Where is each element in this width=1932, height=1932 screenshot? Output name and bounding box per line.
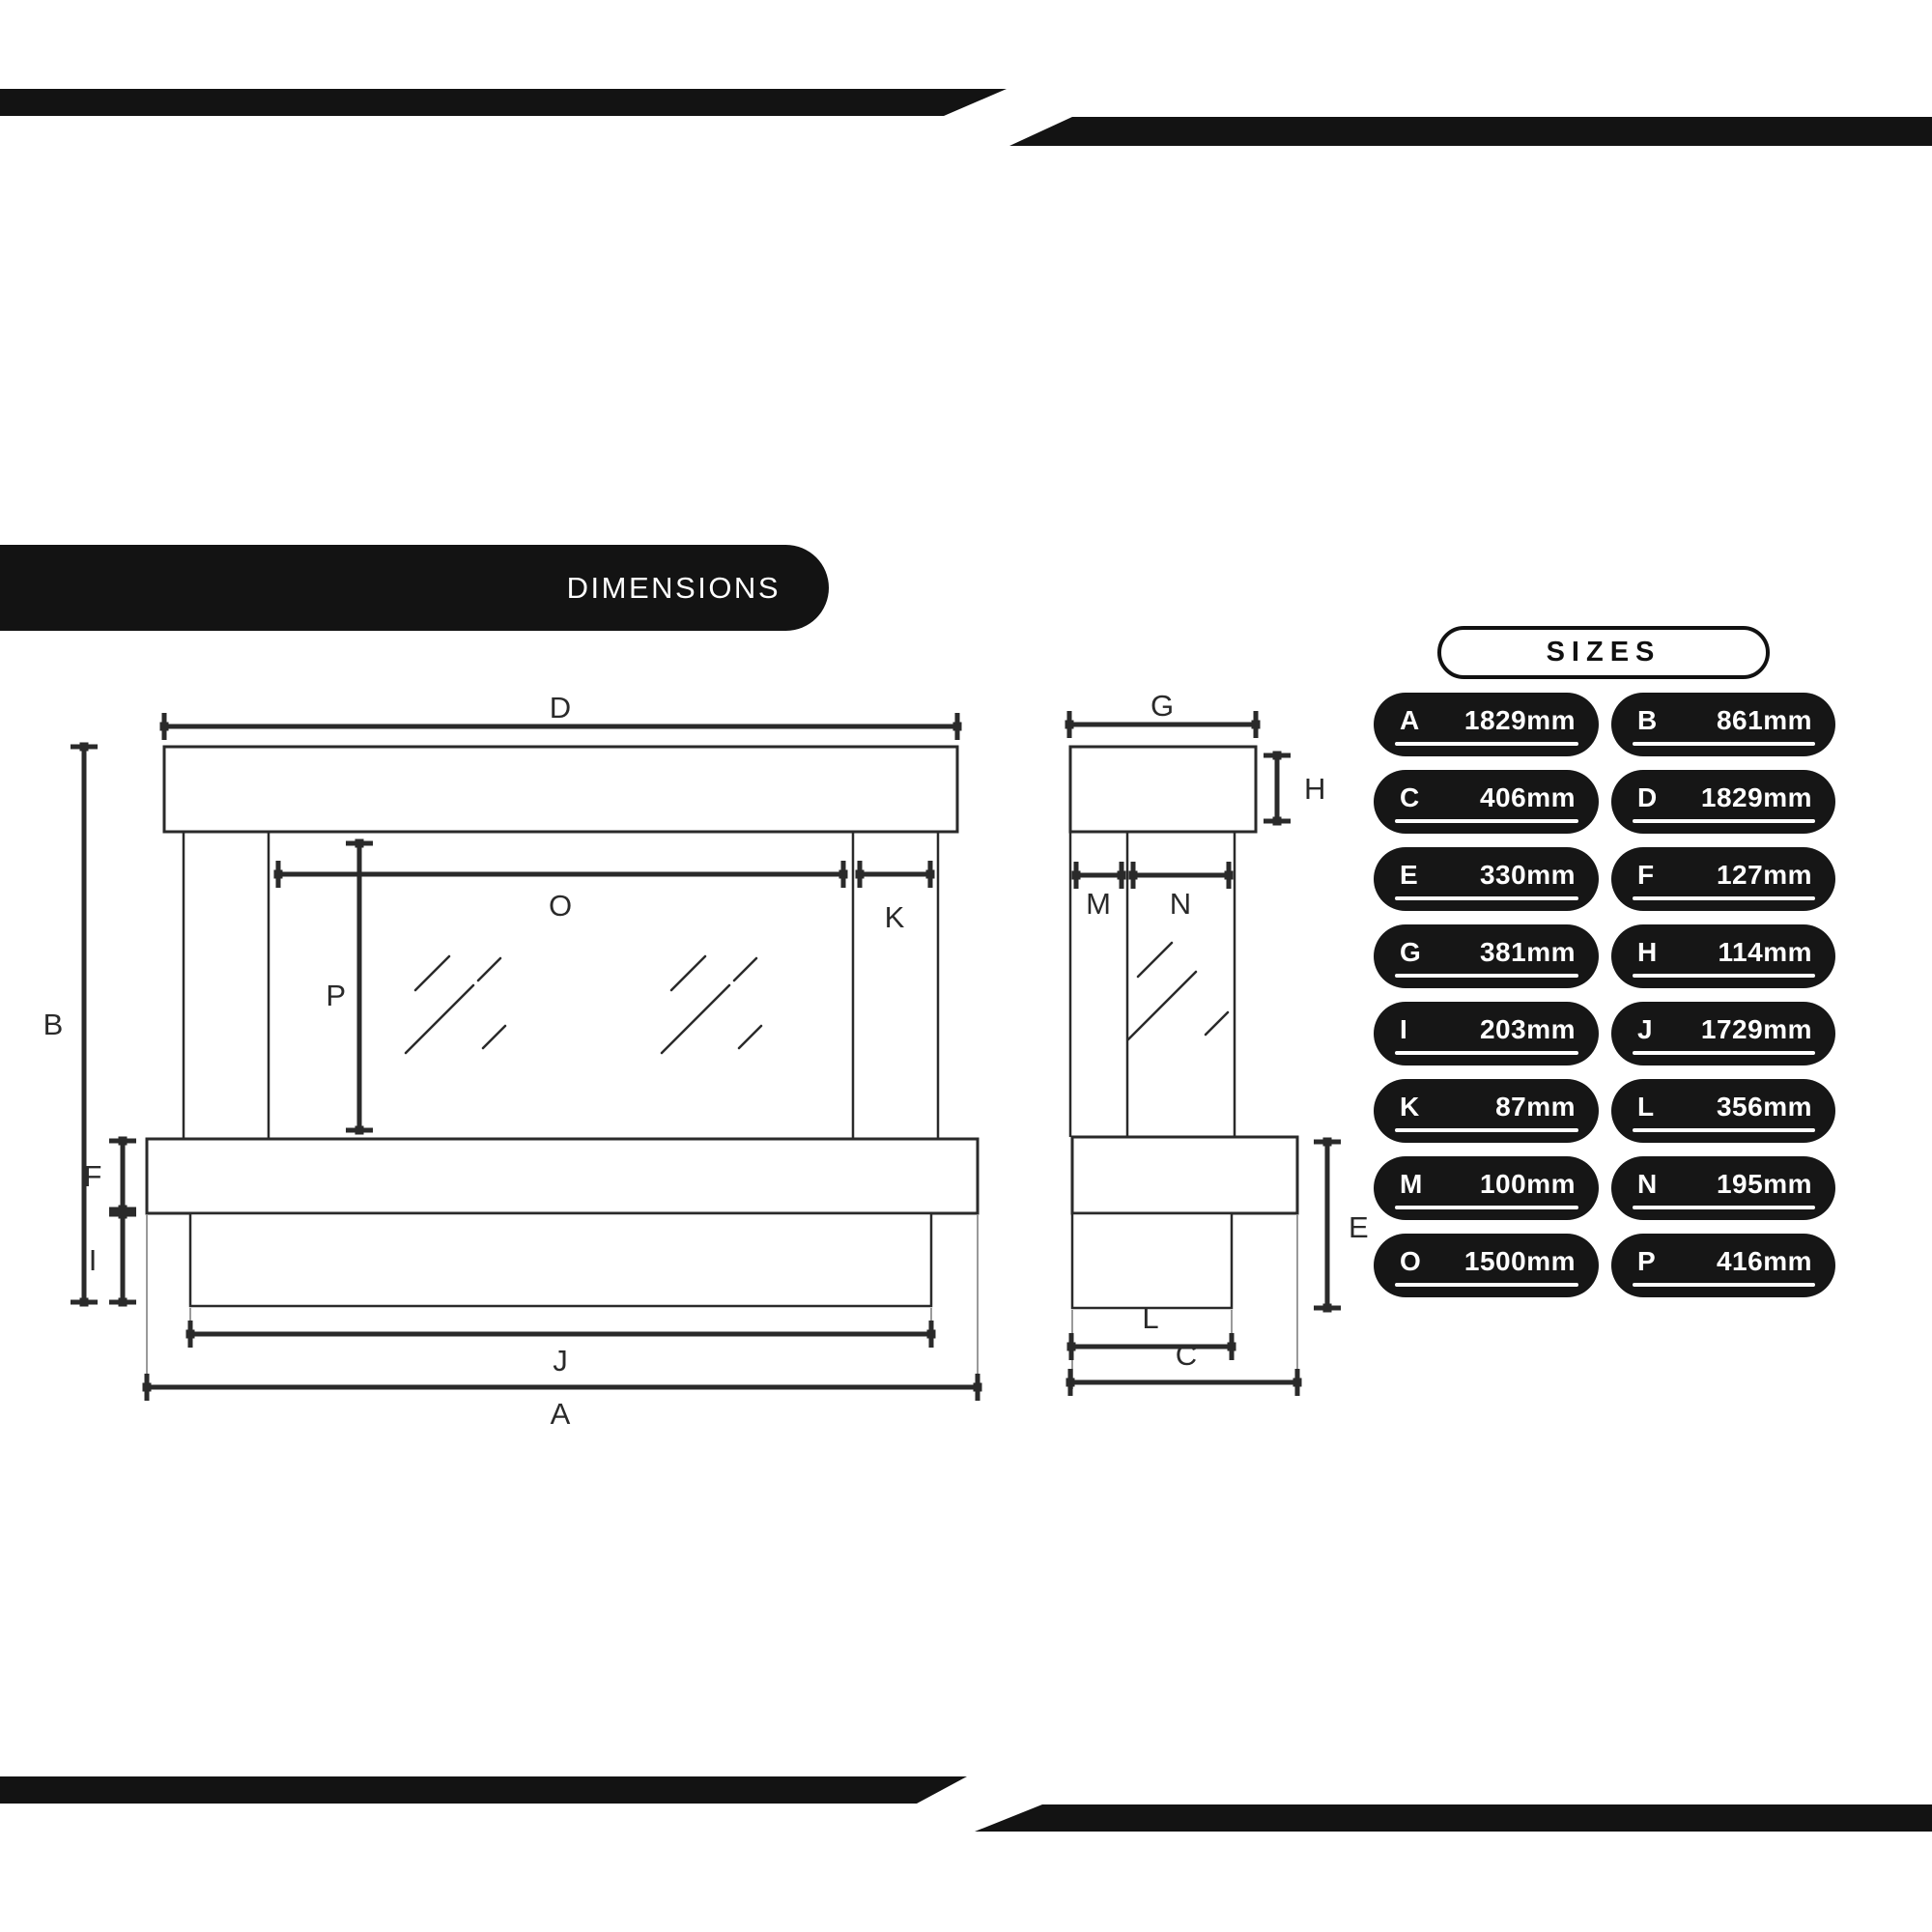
dim-A: A bbox=[143, 1374, 982, 1431]
badge-underline bbox=[1395, 974, 1578, 978]
dim-I: I bbox=[89, 1210, 136, 1307]
side-view: G H M bbox=[1065, 689, 1369, 1396]
dim-label-K: K bbox=[885, 900, 905, 934]
side-base-top bbox=[1072, 1137, 1297, 1213]
badge-underline bbox=[1633, 742, 1815, 746]
dim-label-O: O bbox=[549, 889, 572, 923]
size-key: D bbox=[1637, 782, 1658, 813]
size-value: 416mm bbox=[1717, 1246, 1812, 1277]
size-value: 100mm bbox=[1480, 1169, 1576, 1200]
size-value: 87mm bbox=[1495, 1092, 1576, 1122]
badge-underline bbox=[1633, 974, 1815, 978]
glass-hatch-icon bbox=[662, 956, 761, 1053]
side-base-recess bbox=[1072, 1213, 1232, 1308]
badge-underline bbox=[1395, 896, 1578, 900]
badge-underline bbox=[1633, 1128, 1815, 1132]
size-value: 1829mm bbox=[1464, 705, 1576, 736]
dim-label-B: B bbox=[43, 1008, 64, 1041]
dim-label-G: G bbox=[1151, 689, 1174, 723]
size-key: M bbox=[1400, 1169, 1423, 1200]
dim-label-P: P bbox=[326, 979, 346, 1012]
dim-G: G bbox=[1065, 689, 1261, 738]
glass-hatch-icon bbox=[406, 956, 505, 1053]
badge-underline bbox=[1633, 1206, 1815, 1209]
size-key: B bbox=[1637, 705, 1658, 736]
size-value: 203mm bbox=[1480, 1014, 1576, 1045]
size-key: G bbox=[1400, 937, 1421, 968]
front-top-shelf bbox=[164, 747, 957, 832]
size-key: I bbox=[1400, 1014, 1407, 1045]
size-value: 1729mm bbox=[1701, 1014, 1812, 1045]
size-value: 114mm bbox=[1719, 937, 1812, 968]
badge-underline bbox=[1633, 896, 1815, 900]
size-key: C bbox=[1400, 782, 1420, 813]
dim-label-M: M bbox=[1086, 887, 1111, 921]
badge-underline bbox=[1633, 819, 1815, 823]
size-badge-f: F127mm bbox=[1611, 847, 1835, 911]
size-key: O bbox=[1400, 1246, 1421, 1277]
size-value: 861mm bbox=[1717, 705, 1812, 736]
size-value: 381mm bbox=[1480, 937, 1576, 968]
bottom-left-bar bbox=[0, 1776, 967, 1804]
size-key: P bbox=[1637, 1246, 1656, 1277]
badge-underline bbox=[1395, 1206, 1578, 1209]
size-value: 1829mm bbox=[1701, 782, 1812, 813]
front-view: D B O bbox=[43, 691, 982, 1431]
size-badge-d: D1829mm bbox=[1611, 770, 1835, 834]
size-badge-b: B861mm bbox=[1611, 693, 1835, 756]
size-badge-n: N195mm bbox=[1611, 1156, 1835, 1220]
top-left-bar bbox=[0, 89, 1007, 116]
dim-label-L: L bbox=[1142, 1301, 1158, 1335]
sizes-header-pill: SIZES bbox=[1437, 626, 1770, 679]
dim-label-N: N bbox=[1170, 887, 1191, 921]
size-key: J bbox=[1637, 1014, 1653, 1045]
dim-label-C: C bbox=[1176, 1338, 1197, 1372]
size-value: 127mm bbox=[1717, 860, 1812, 891]
dim-D: D bbox=[160, 691, 962, 740]
size-key: A bbox=[1400, 705, 1420, 736]
badge-underline bbox=[1633, 1051, 1815, 1055]
dimensions-header-pill: DIMENSIONS bbox=[0, 545, 829, 631]
size-badge-g: G381mm bbox=[1374, 924, 1599, 988]
badge-underline bbox=[1395, 1128, 1578, 1132]
size-badge-e: E330mm bbox=[1374, 847, 1599, 911]
sizes-title: SIZES bbox=[1547, 637, 1662, 668]
dim-F: F bbox=[84, 1137, 136, 1214]
size-key: N bbox=[1637, 1169, 1658, 1200]
dim-E: E bbox=[1314, 1138, 1369, 1313]
size-value: 406mm bbox=[1480, 782, 1576, 813]
dim-label-H: H bbox=[1304, 772, 1325, 806]
size-badge-k: K87mm bbox=[1374, 1079, 1599, 1143]
size-badge-i: I203mm bbox=[1374, 1002, 1599, 1065]
size-badge-m: M100mm bbox=[1374, 1156, 1599, 1220]
badge-underline bbox=[1395, 819, 1578, 823]
front-base-top bbox=[147, 1139, 978, 1213]
size-badge-l: L356mm bbox=[1611, 1079, 1835, 1143]
size-key: L bbox=[1637, 1092, 1655, 1122]
dim-H: H bbox=[1264, 752, 1325, 826]
size-badge-j: J1729mm bbox=[1611, 1002, 1835, 1065]
dim-P: P bbox=[326, 839, 373, 1135]
badge-underline bbox=[1395, 1283, 1578, 1287]
dimensions-sheet: D B O bbox=[0, 0, 1932, 1932]
dim-label-A: A bbox=[551, 1397, 571, 1431]
size-value: 1500mm bbox=[1464, 1246, 1576, 1277]
dim-label-J: J bbox=[553, 1344, 568, 1378]
front-base-recess bbox=[190, 1213, 931, 1306]
side-top-shelf bbox=[1070, 747, 1256, 832]
size-key: F bbox=[1637, 860, 1655, 891]
size-key: H bbox=[1637, 937, 1658, 968]
sizes-panel: A1829mm B861mm C406mm D1829mm E330mm F12… bbox=[1374, 693, 1835, 1297]
size-key: K bbox=[1400, 1092, 1420, 1122]
size-value: 356mm bbox=[1717, 1092, 1812, 1122]
dim-L: L bbox=[1067, 1301, 1236, 1360]
dim-label-I: I bbox=[89, 1243, 98, 1277]
bottom-right-bar bbox=[975, 1804, 1932, 1832]
dim-B: B bbox=[43, 743, 98, 1307]
dim-label-E: E bbox=[1349, 1210, 1369, 1244]
size-value: 195mm bbox=[1717, 1169, 1812, 1200]
top-right-bar bbox=[1009, 117, 1932, 146]
glass-hatch-icon bbox=[1128, 943, 1228, 1039]
badge-underline bbox=[1633, 1283, 1815, 1287]
size-key: E bbox=[1400, 860, 1418, 891]
size-badge-h: H114mm bbox=[1611, 924, 1835, 988]
size-badge-a: A1829mm bbox=[1374, 693, 1599, 756]
dim-J: J bbox=[186, 1321, 936, 1378]
size-value: 330mm bbox=[1480, 860, 1576, 891]
size-badge-p: P416mm bbox=[1611, 1234, 1835, 1297]
dim-N: N bbox=[1129, 862, 1234, 921]
dim-K: K bbox=[856, 861, 935, 934]
size-badge-c: C406mm bbox=[1374, 770, 1599, 834]
dimensions-title: DIMENSIONS bbox=[567, 571, 781, 606]
badge-underline bbox=[1395, 742, 1578, 746]
dim-label-D: D bbox=[550, 691, 571, 724]
badge-underline bbox=[1395, 1051, 1578, 1055]
front-legs bbox=[184, 832, 938, 1139]
dim-M: M bbox=[1072, 862, 1126, 921]
size-badge-o: O1500mm bbox=[1374, 1234, 1599, 1297]
dim-label-F: F bbox=[84, 1159, 102, 1193]
